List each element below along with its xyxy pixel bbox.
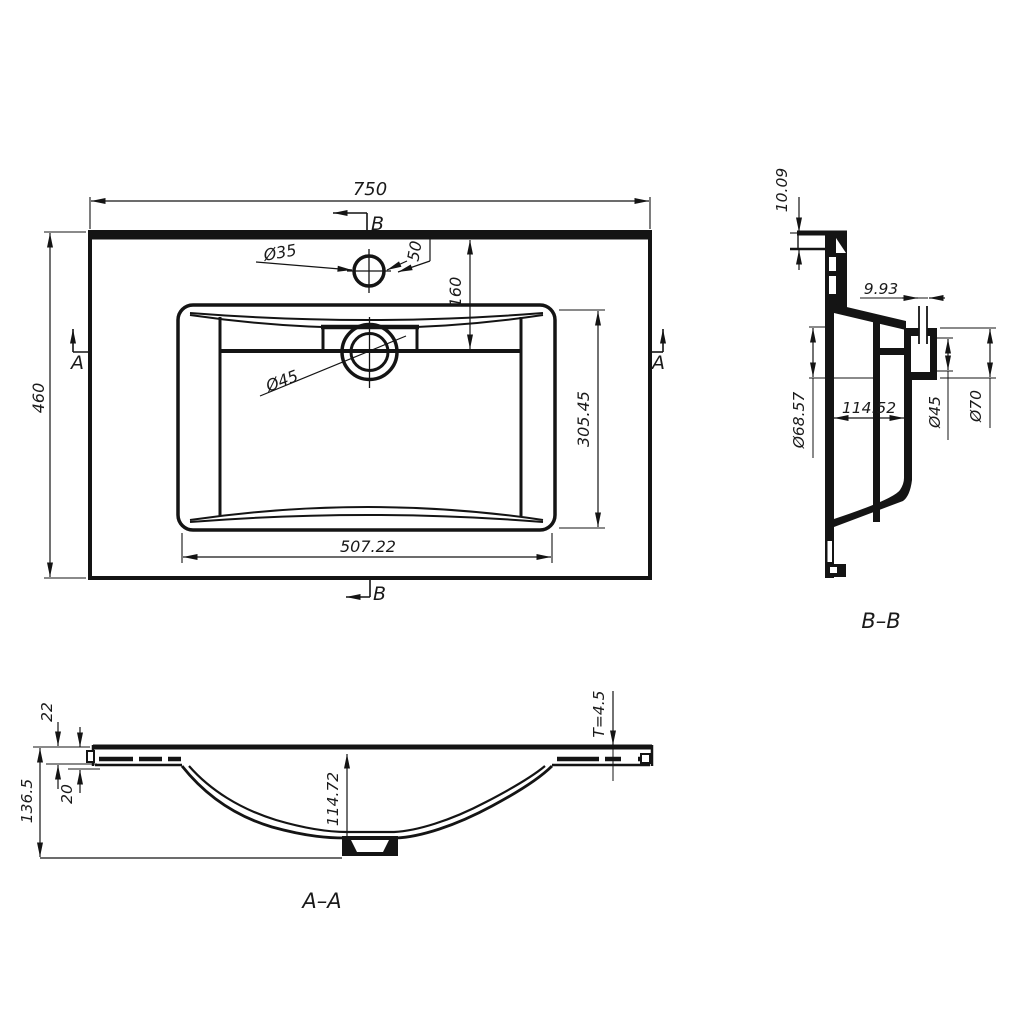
dim-width-750: 750	[90, 179, 650, 229]
section-marker-a-label: A	[69, 352, 84, 374]
aa-dim-bowl-depth-label: 114.72	[324, 772, 342, 826]
section-marker-b-bottom: B	[346, 578, 386, 605]
bb-basin-walls	[834, 317, 912, 527]
aa-dim-total-height-label: 136.5	[18, 779, 36, 823]
aa-drain-fitting	[342, 836, 398, 856]
drawing-canvas: 750 460 507.22 305.45 Ø35	[0, 0, 1024, 1024]
section-bb-title: B–B	[861, 609, 900, 633]
dim-faucet-offset: 50	[398, 239, 430, 272]
aa-dim-bowl-depth: 114.72	[324, 754, 347, 836]
aa-dim-edge-label: 22	[38, 702, 56, 722]
bb-dim-basin-depth: 114.52	[833, 358, 905, 424]
dim-basin-depth-label: 305.45	[574, 391, 593, 447]
dim-basin-width-label: 507.22	[340, 537, 396, 556]
dim-drain-offset: 160	[446, 240, 470, 349]
aa-bowl	[182, 766, 552, 838]
section-aa-title: A–A	[300, 889, 341, 913]
bb-dim-sleeve: 9.93	[860, 280, 945, 298]
aa-dim-thickness-label: T=4.5	[590, 690, 608, 737]
section-marker-a-right: A	[650, 329, 665, 374]
bb-dim-sleeve-label: 9.93	[864, 280, 899, 298]
dim-faucet-dia-label: Ø35	[261, 240, 298, 265]
dim-basin-depth: 305.45	[559, 310, 605, 528]
section-marker-b-label: B	[373, 583, 386, 605]
section-bb-view: 10.09 9.93 Ø68.57 114.52	[773, 168, 996, 633]
section-aa-view: 22 20 136.5 114.72 T=4.5 A–A	[18, 690, 652, 913]
washbasin-technical-drawing: 750 460 507.22 305.45 Ø35	[0, 0, 1024, 1024]
top-view: 750 460 507.22 305.45 Ø35	[29, 179, 665, 605]
dim-drain-dia: Ø45	[260, 336, 406, 396]
bb-dim-outlet-label: Ø68.57	[790, 392, 808, 450]
aa-dim-thickness: T=4.5	[590, 690, 613, 781]
dim-basin-width: 507.22	[182, 533, 552, 563]
section-marker-b-label: B	[371, 213, 384, 235]
bb-dim-lip: 10.09	[773, 168, 799, 270]
aa-dim-edge: 22	[38, 702, 97, 789]
dim-width-label: 750	[353, 179, 387, 200]
aa-dim-recess-label: 20	[58, 784, 76, 804]
dim-drain-offset-label: 160	[446, 277, 465, 308]
dim-depth-label: 460	[29, 383, 48, 414]
faucet-hole	[347, 249, 391, 293]
bb-dim-hole-label: Ø45	[926, 396, 944, 429]
dim-depth-460: 460	[29, 232, 86, 578]
bb-dim-boss-label: Ø70	[967, 390, 985, 423]
dim-drain-dia-label: Ø45	[262, 366, 301, 396]
bb-dim-lip-label: 10.09	[773, 168, 791, 212]
dim-faucet-offset-label: 50	[403, 239, 425, 262]
bb-deck-and-boss	[834, 304, 937, 380]
basin-rim	[178, 305, 555, 530]
section-marker-a-left: A	[69, 329, 90, 374]
countertop-outline	[88, 232, 652, 578]
aa-slab	[87, 745, 652, 766]
bb-dim-basin-depth-label: 114.52	[842, 399, 896, 417]
section-marker-a-label: A	[650, 352, 665, 374]
